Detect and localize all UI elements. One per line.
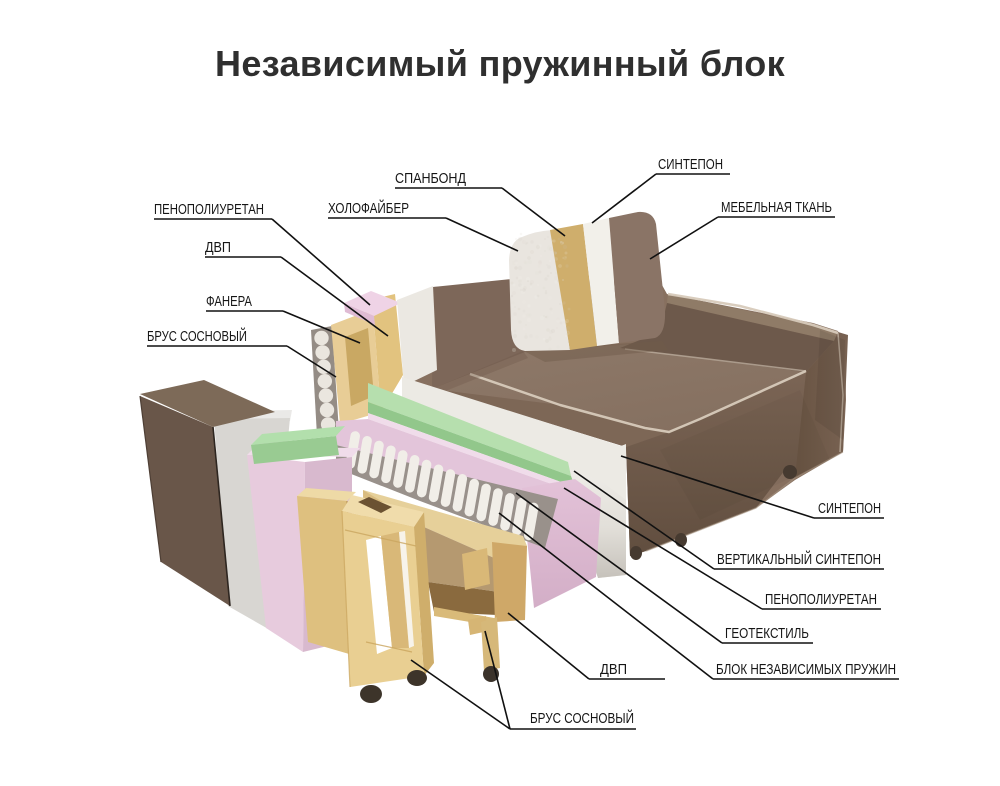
svg-text:ВЕРТИКАЛЬНЫЙ СИНТЕПОН: ВЕРТИКАЛЬНЫЙ СИНТЕПОН — [717, 550, 881, 568]
svg-text:СПАНБОНД: СПАНБОНД — [395, 170, 466, 187]
svg-text:ГЕОТЕКСТИЛЬ: ГЕОТЕКСТИЛЬ — [725, 625, 809, 642]
svg-text:СИНТЕПОН: СИНТЕПОН — [818, 500, 881, 517]
svg-text:ПЕНОПОЛИУРЕТАН: ПЕНОПОЛИУРЕТАН — [154, 201, 264, 218]
svg-text:БЛОК НЕЗАВИСИМЫХ ПРУЖИН: БЛОК НЕЗАВИСИМЫХ ПРУЖИН — [716, 661, 896, 678]
svg-text:ХОЛОФАЙБЕР: ХОЛОФАЙБЕР — [328, 199, 409, 217]
svg-text:ПЕНОПОЛИУРЕТАН: ПЕНОПОЛИУРЕТАН — [765, 591, 877, 608]
svg-text:БРУС СОСНОВЫЙ: БРУС СОСНОВЫЙ — [530, 709, 634, 727]
svg-text:ДВП: ДВП — [600, 661, 627, 678]
svg-text:МЕБЕЛЬНАЯ ТКАНЬ: МЕБЕЛЬНАЯ ТКАНЬ — [721, 199, 832, 216]
svg-text:СИНТЕПОН: СИНТЕПОН — [658, 156, 723, 173]
svg-text:БРУС СОСНОВЫЙ: БРУС СОСНОВЫЙ — [147, 327, 247, 345]
svg-text:ДВП: ДВП — [205, 239, 231, 256]
svg-text:ФАНЕРА: ФАНЕРА — [206, 293, 252, 310]
